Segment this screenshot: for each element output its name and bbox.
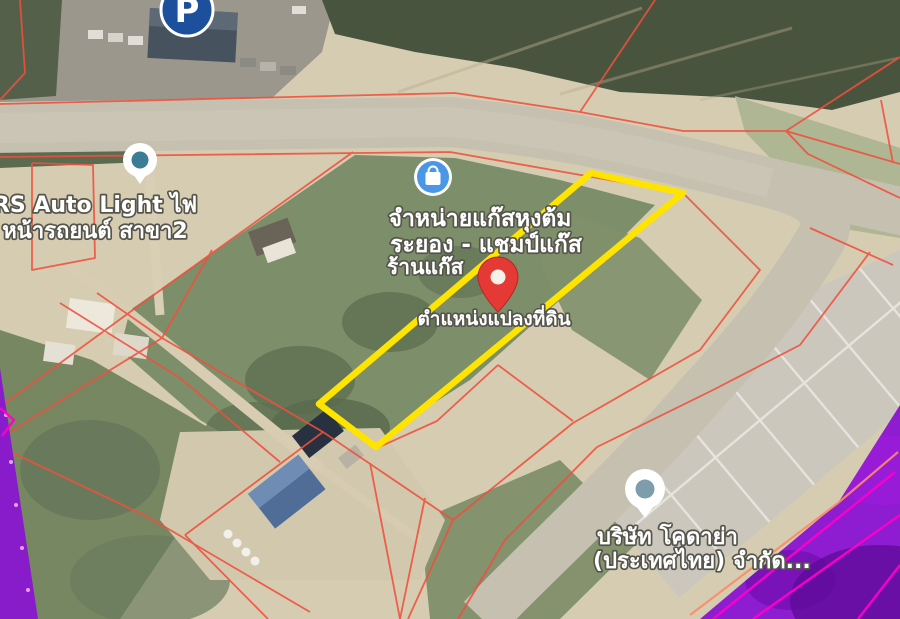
poi-label-gas-line2[interactable]: ระยอง - แชมป์แก๊ส [390,231,583,258]
poi-label-rs-line1[interactable]: RS Auto Light ไฟ [0,191,197,218]
pin-label: ตำแหน่งแปลงที่ดิน [417,305,570,330]
shopping-bag-icon[interactable] [414,158,452,196]
gas-station-logo: P [161,0,213,36]
poi-label-gas-line1[interactable]: จำหน่ายแก๊สหุงต้ม [389,205,572,233]
satellite-map[interactable]: P RS Auto Light ไฟ หน้ารถยนต์ สาขา2 จำหน… [0,0,900,619]
poi-label-rs-line2[interactable]: หน้ารถยนต์ สาขา2 [2,218,187,244]
poi-label-company-line1[interactable]: บริษัท โคดาย่า [597,523,738,550]
gas-station-logo-letter: P [175,0,200,31]
poi-label-gas-line3[interactable]: ร้านแก๊ส [387,255,464,279]
poi-label-company-line2[interactable]: (ประเทศไทย) จำกัด... [593,547,811,574]
